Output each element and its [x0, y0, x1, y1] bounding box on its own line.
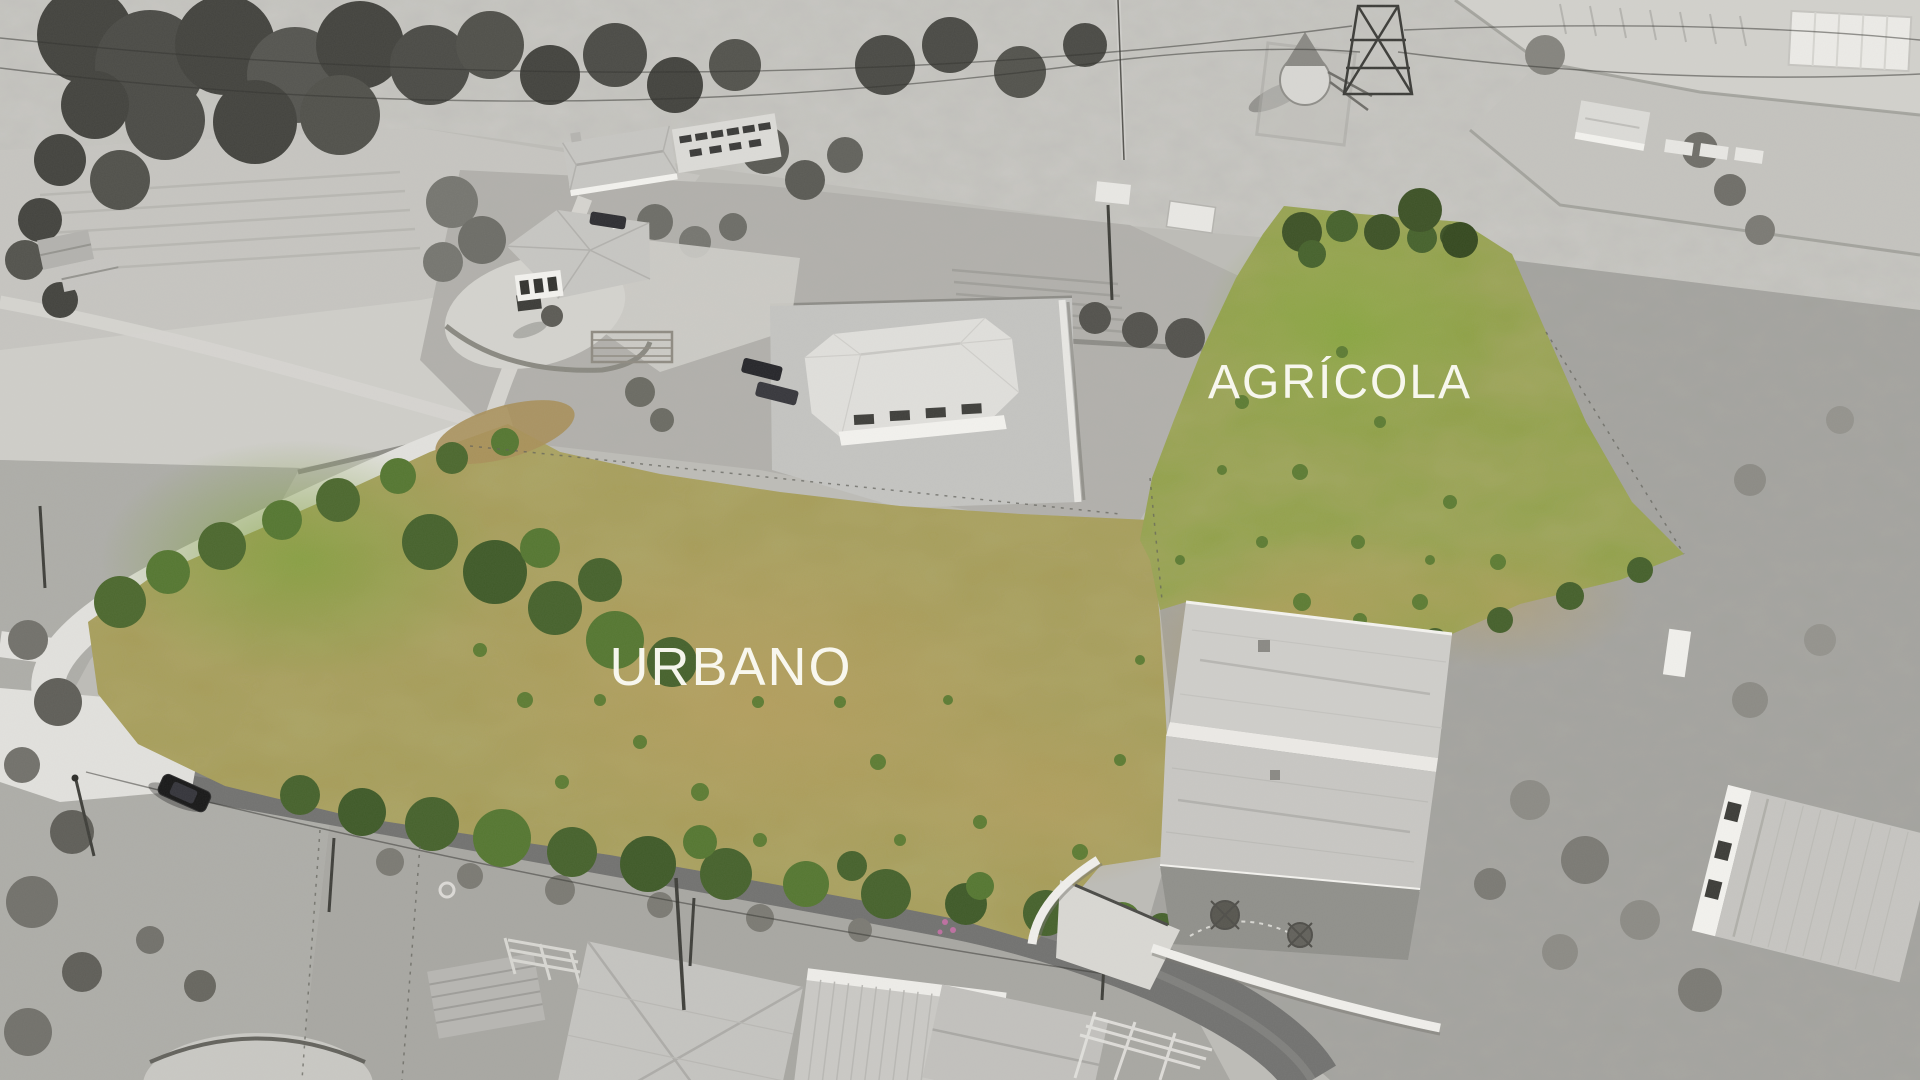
label-urbano: URBANO [609, 637, 852, 697]
aerial-photo: AGRÍCOLA URBANO [0, 0, 1920, 1080]
photo-grain [0, 0, 1920, 1080]
label-agricola: AGRÍCOLA [1208, 356, 1472, 409]
